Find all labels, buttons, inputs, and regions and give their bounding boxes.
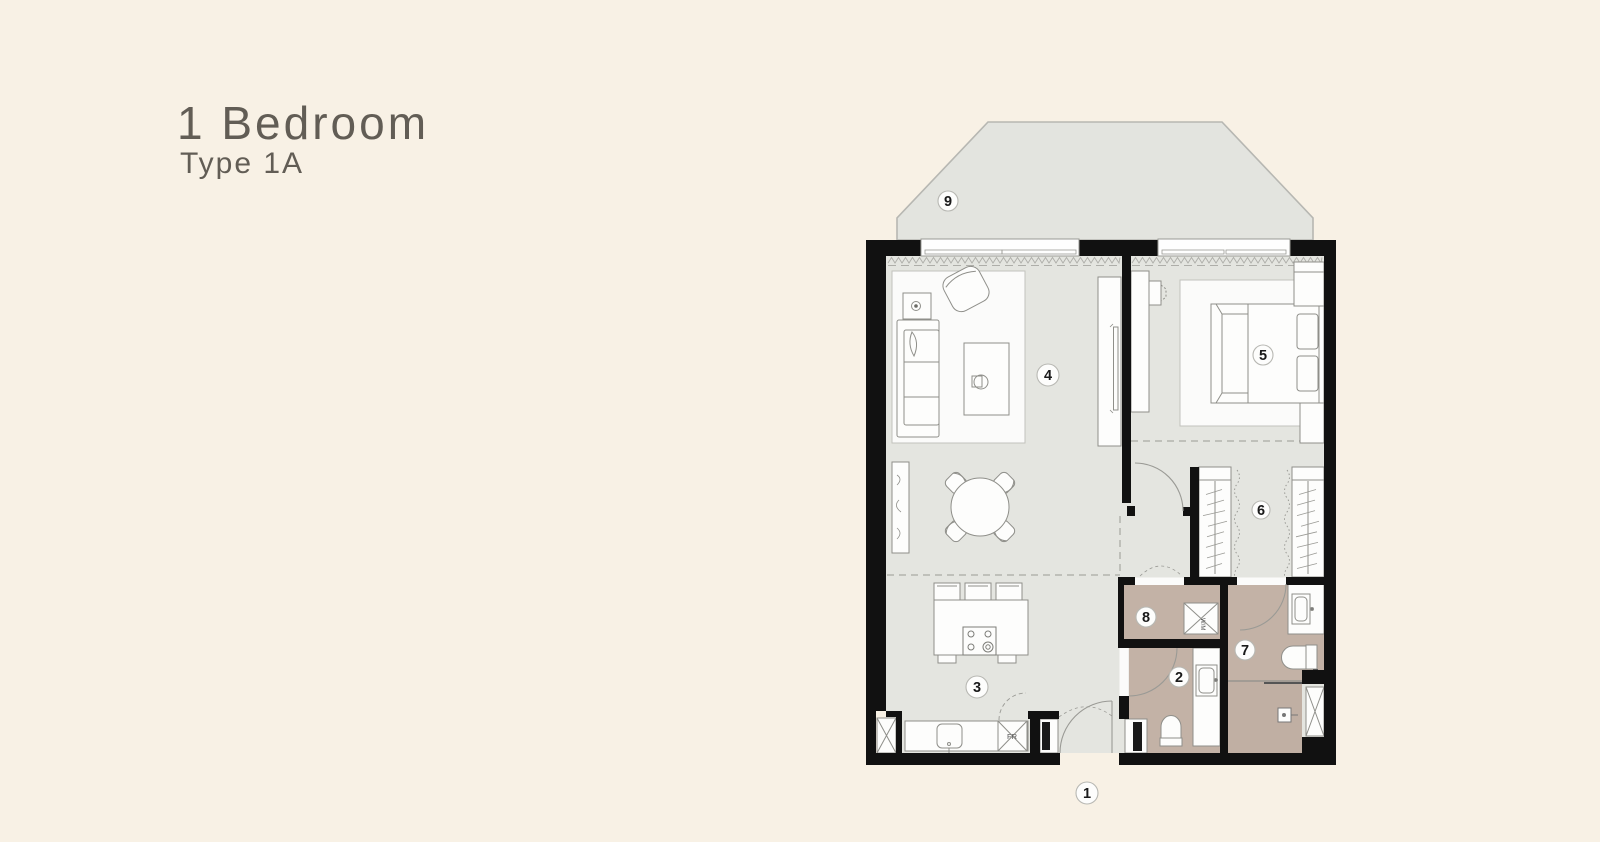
svg-text:3: 3 <box>973 680 981 696</box>
svg-text:6: 6 <box>1257 503 1265 519</box>
svg-text:4: 4 <box>1044 368 1052 384</box>
svg-text:FR: FR <box>1007 732 1018 741</box>
svg-text:Type 1A: Type 1A <box>180 147 304 180</box>
svg-text:7: 7 <box>1241 643 1249 659</box>
svg-text:9: 9 <box>944 194 952 210</box>
svg-text:8: 8 <box>1142 610 1150 626</box>
svg-text:1 Bedroom: 1 Bedroom <box>177 97 429 149</box>
svg-text:1: 1 <box>1083 786 1091 802</box>
svg-text:5: 5 <box>1259 348 1267 364</box>
svg-text:W/M: W/M <box>1199 618 1205 630</box>
svg-text:2: 2 <box>1175 670 1183 686</box>
